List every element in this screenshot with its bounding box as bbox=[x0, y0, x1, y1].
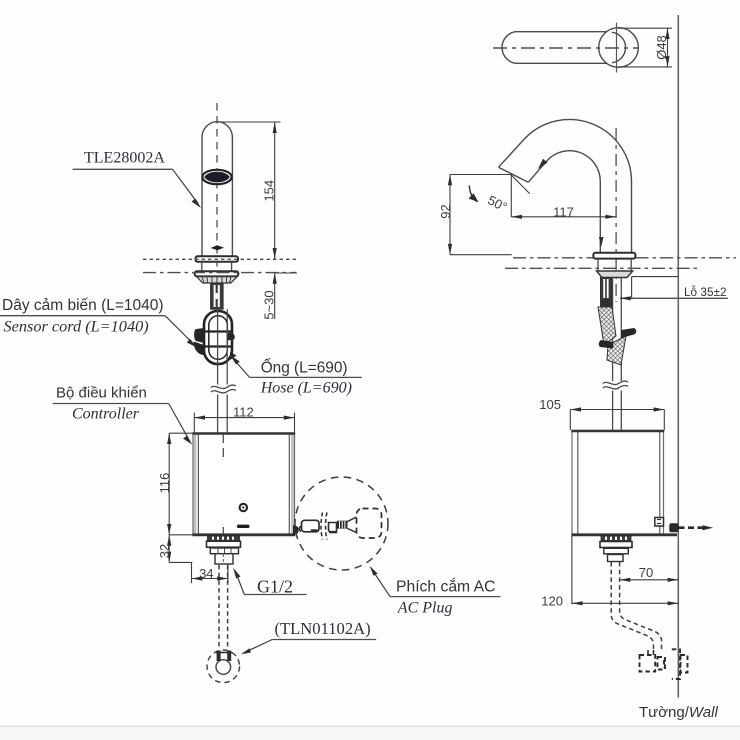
svg-text:50°: 50° bbox=[485, 192, 509, 214]
svg-text:Ống (L=690): Ống (L=690) bbox=[261, 359, 348, 377]
svg-text:(TLN01102A): (TLN01102A) bbox=[275, 619, 371, 638]
svg-text:Hose (L=690): Hose (L=690) bbox=[260, 380, 352, 397]
svg-text:117: 117 bbox=[553, 204, 574, 219]
svg-text:G1/2: G1/2 bbox=[257, 577, 293, 597]
svg-text:Tường/Wall: Tường/Wall bbox=[639, 704, 718, 721]
svg-text:32: 32 bbox=[157, 544, 172, 558]
svg-text:154: 154 bbox=[262, 180, 277, 202]
svg-text:120: 120 bbox=[541, 594, 563, 609]
svg-text:Lỗ 35±2: Lỗ 35±2 bbox=[684, 285, 727, 299]
svg-text:34: 34 bbox=[199, 566, 213, 581]
svg-text:AC Plug: AC Plug bbox=[397, 600, 453, 617]
svg-text:112: 112 bbox=[233, 405, 254, 420]
svg-text:Dây cảm biến (L=1040): Dây cảm biến (L=1040) bbox=[2, 297, 164, 314]
svg-text:70: 70 bbox=[639, 565, 653, 580]
svg-text:Ø48: Ø48 bbox=[654, 35, 669, 60]
svg-text:TLE28002A: TLE28002A bbox=[84, 150, 165, 167]
svg-text:92: 92 bbox=[438, 204, 453, 218]
svg-text:Phích cắm AC: Phích cắm AC bbox=[396, 577, 495, 596]
svg-text:Bộ điều khiển: Bộ điều khiển bbox=[56, 385, 147, 402]
svg-text:5~30: 5~30 bbox=[262, 290, 277, 319]
svg-text:105: 105 bbox=[539, 397, 561, 412]
svg-text:Sensor cord (L=1040): Sensor cord (L=1040) bbox=[4, 317, 149, 336]
svg-text:116: 116 bbox=[157, 473, 172, 494]
svg-text:Controller: Controller bbox=[72, 406, 140, 423]
